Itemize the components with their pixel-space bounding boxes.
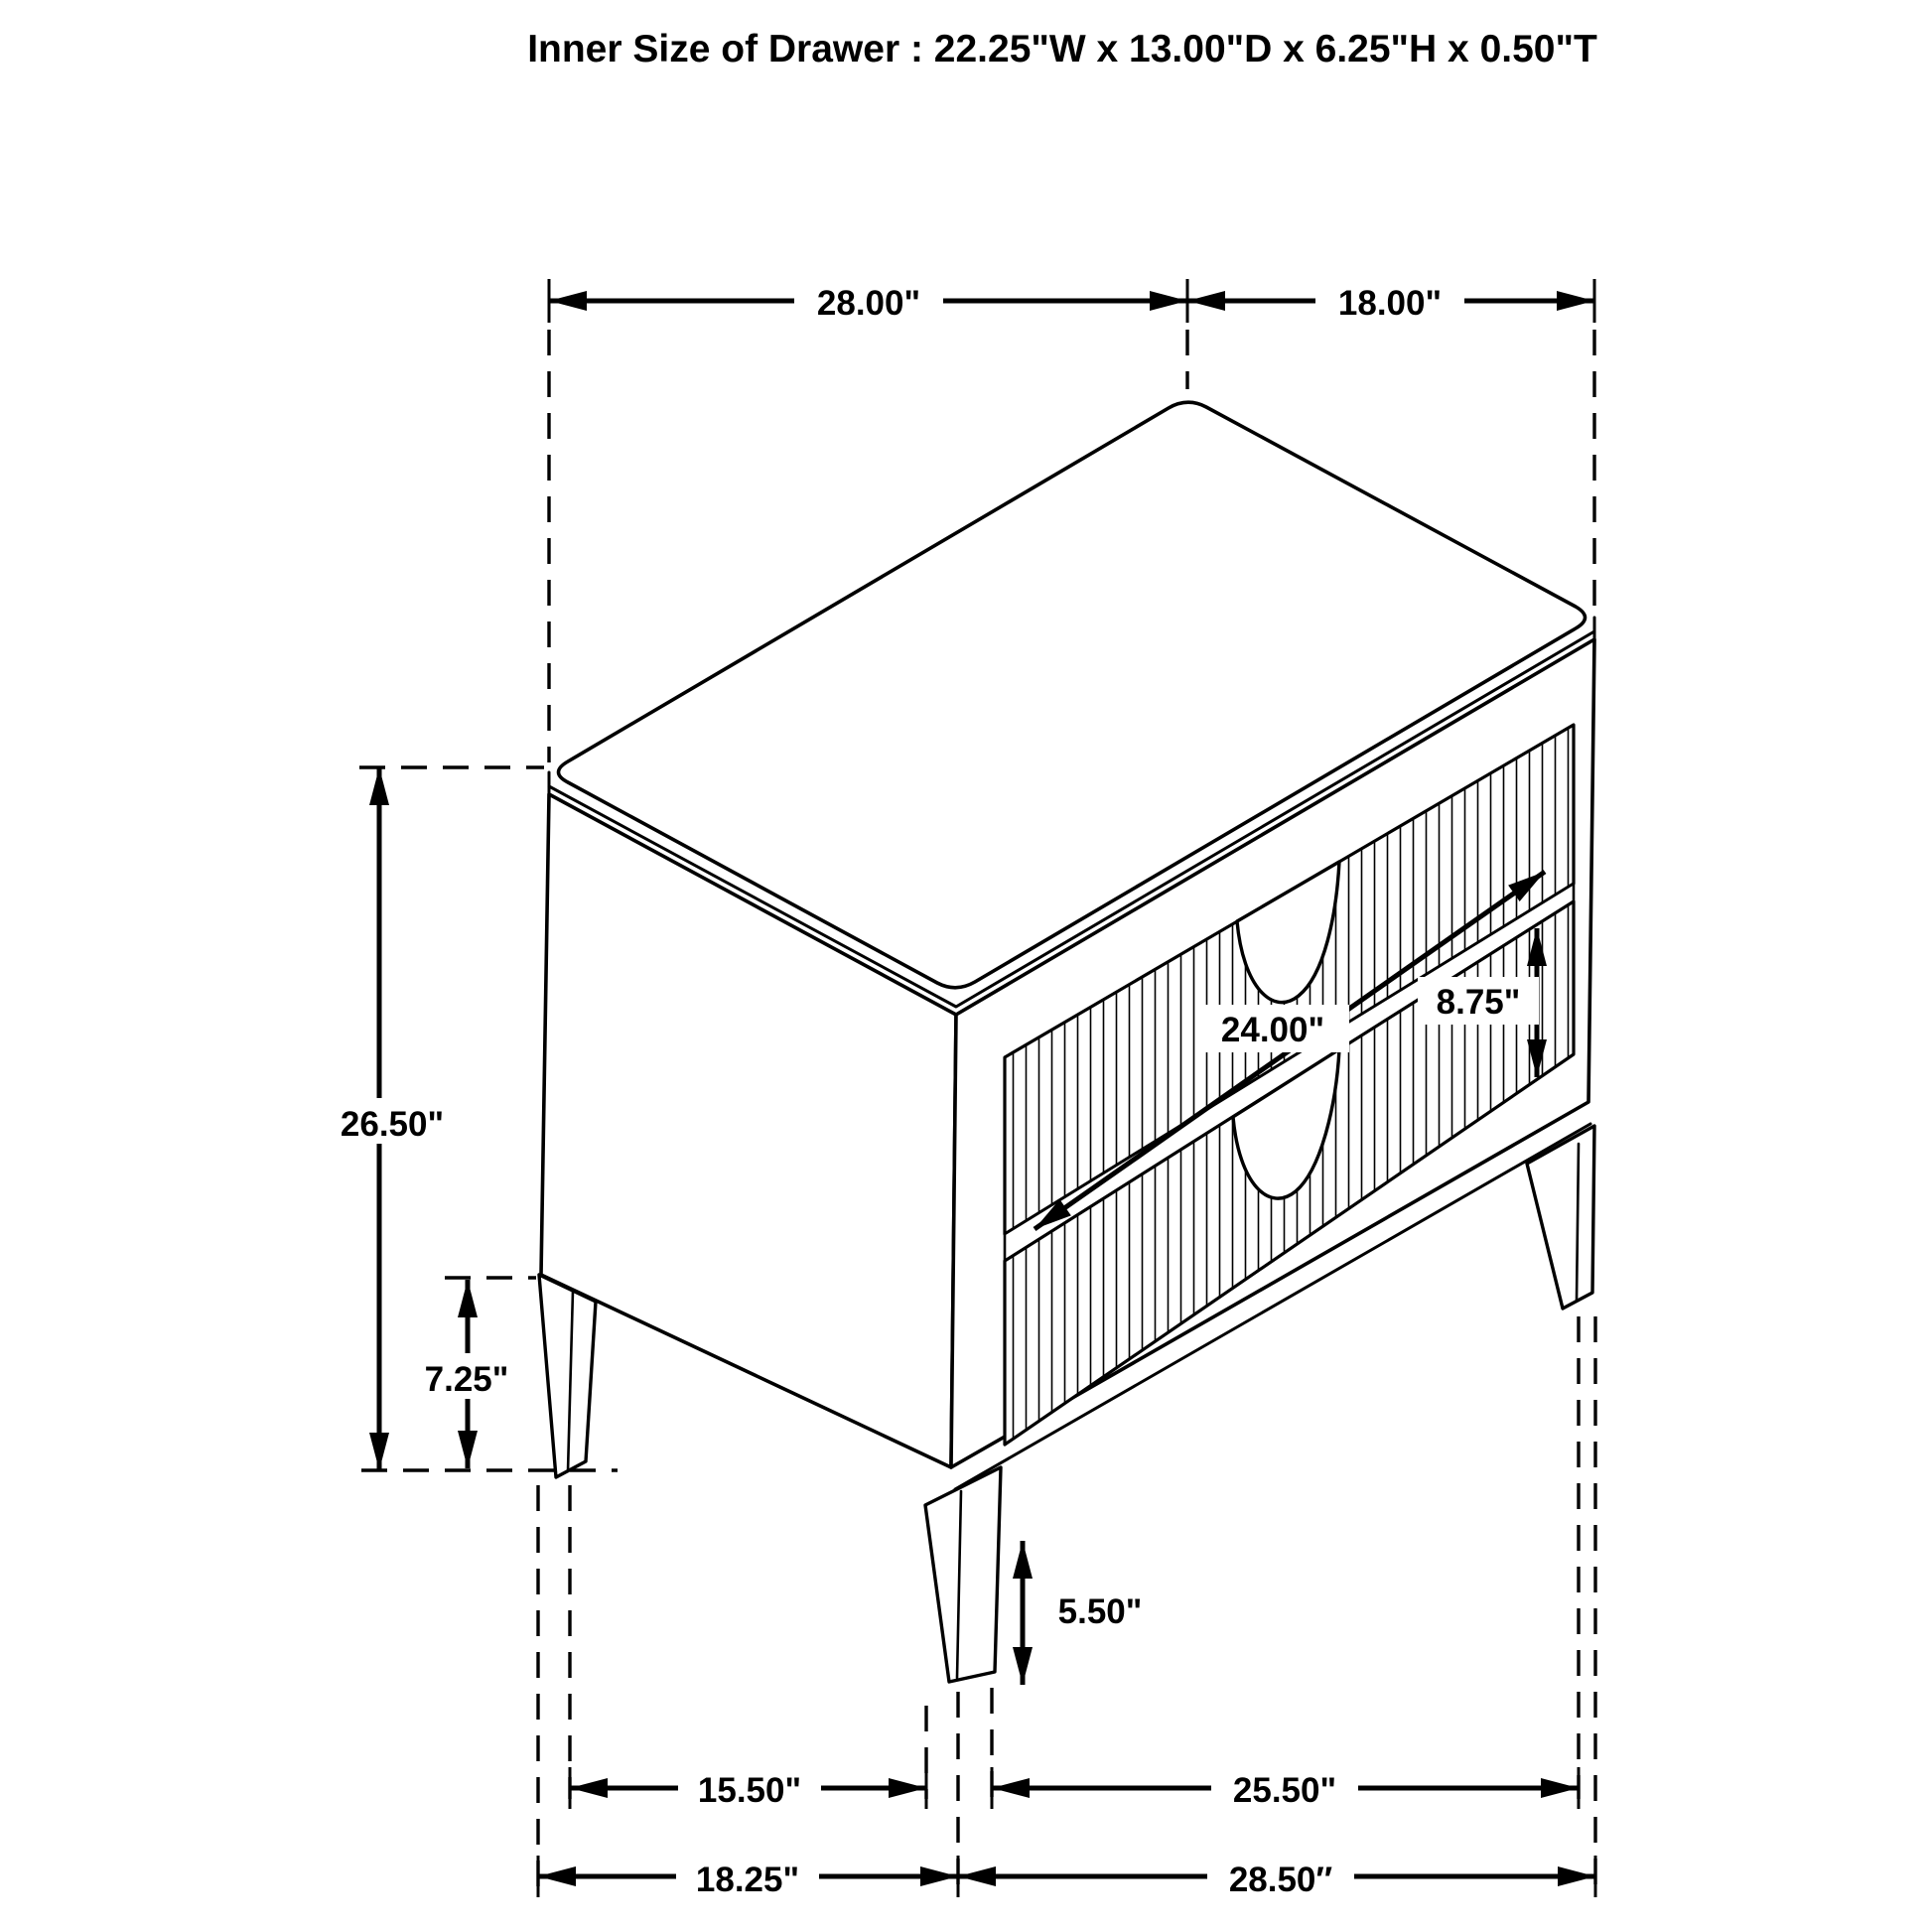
dim-leg-height-label: 5.50" <box>1058 1592 1143 1631</box>
dim-overall-height-label: 26.50" <box>341 1105 444 1144</box>
diagram-title: Inner Size of Drawer : 22.25"W x 13.00"D… <box>527 28 1597 70</box>
dim-base-width-label: 28.50″ <box>1229 1861 1333 1899</box>
dim-front-leg-gap-label: 15.50" <box>698 1771 801 1810</box>
dim-drawer-width-label: 24.00" <box>1221 1011 1324 1049</box>
dim-drawer-front-height-label: 8.75" <box>1437 983 1521 1022</box>
dim-base-section-height-label: 7.25" <box>425 1360 509 1399</box>
dim-base-depth-label: 18.25" <box>696 1861 799 1899</box>
dimension-diagram: Inner Size of Drawer : 22.25"W x 13.00"D… <box>0 0 1932 1932</box>
nightstand-dimension-drawing: Inner Size of Drawer : 22.25"W x 13.00"D… <box>0 0 1932 1932</box>
dim-top-depth-label: 18.00" <box>1338 284 1442 323</box>
dim-top-width-label: 28.00" <box>817 284 920 323</box>
dim-side-leg-gap-label: 25.50" <box>1233 1771 1336 1810</box>
